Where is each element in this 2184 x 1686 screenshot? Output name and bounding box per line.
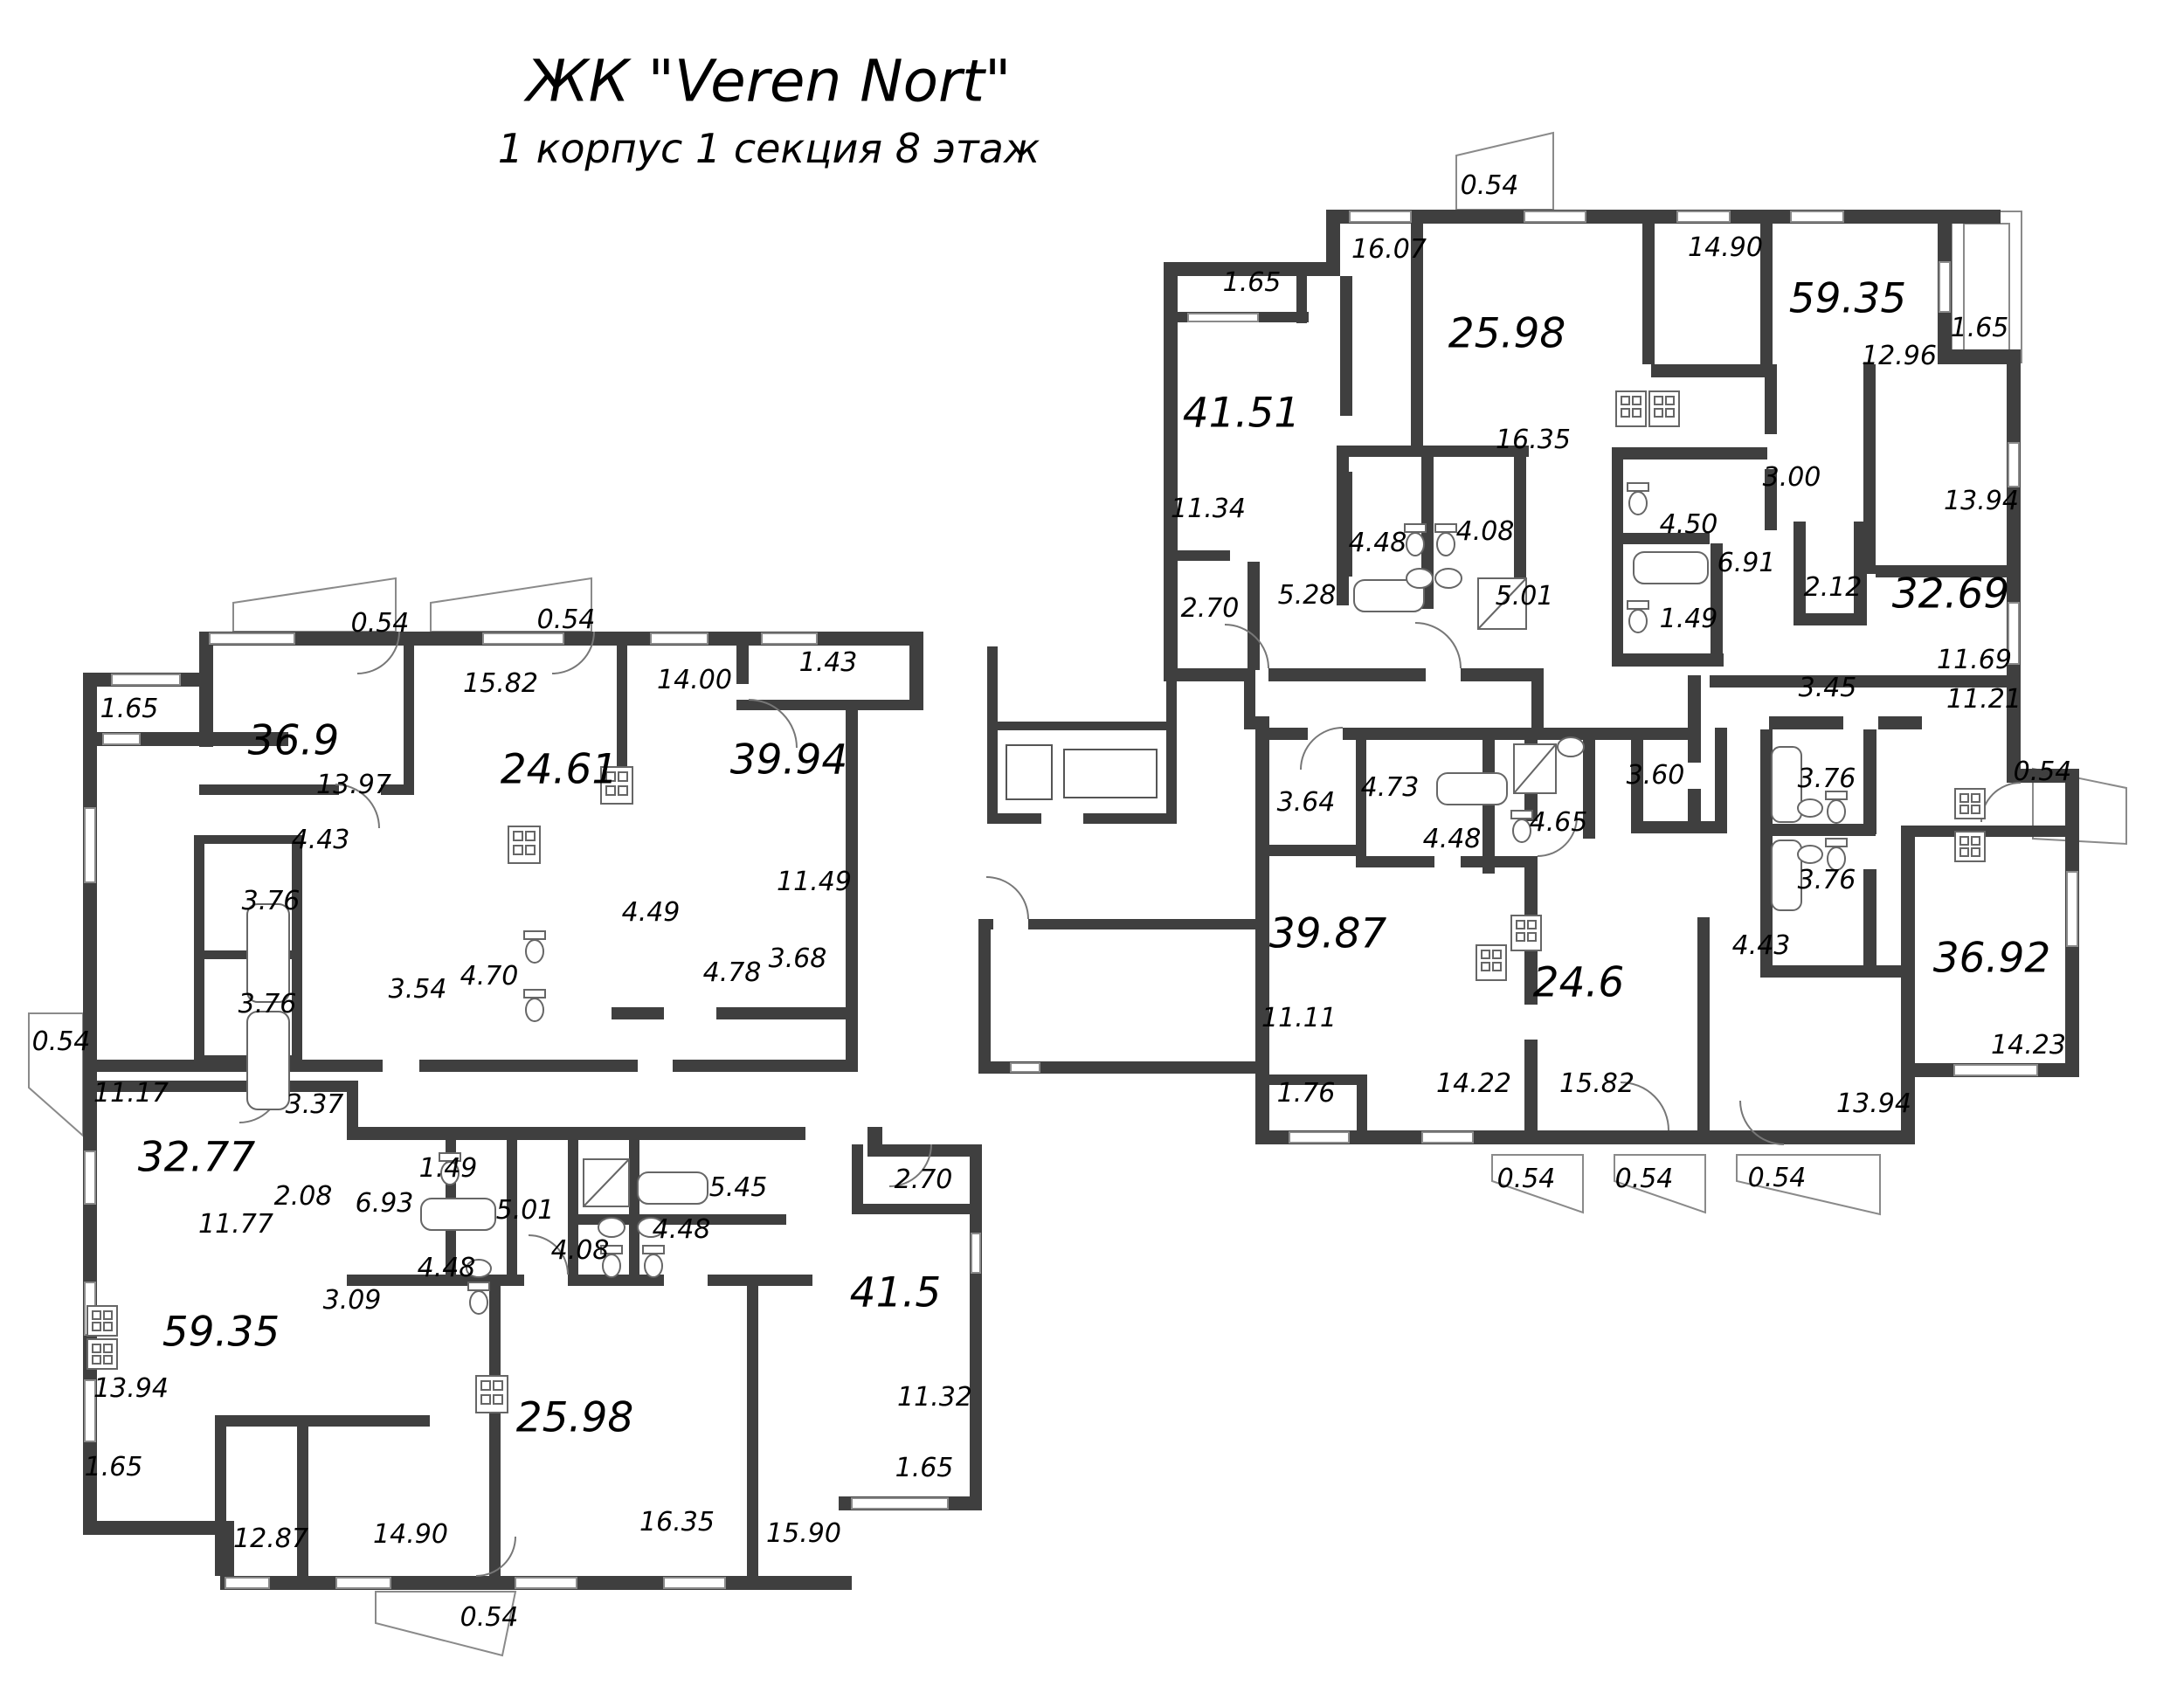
area-label: 11.21 <box>1946 687 2022 713</box>
area-label: 2.70 <box>1181 596 1240 622</box>
fixtures <box>87 391 1985 1413</box>
area-label: 0.54 <box>1748 1165 1807 1192</box>
area-label: 11.32 <box>897 1385 972 1411</box>
toilet-icon <box>1628 601 1648 632</box>
area-label: 4.48 <box>653 1217 711 1243</box>
area-label: 59.35 <box>1789 279 1907 320</box>
window <box>1422 1132 1473 1143</box>
sink-icon <box>1406 569 1433 588</box>
area-label: 1.49 <box>419 1156 478 1182</box>
area-label: 15.82 <box>1559 1071 1635 1097</box>
area-label: 14.22 <box>1436 1071 1511 1097</box>
toilet-icon <box>468 1282 489 1314</box>
stove-icon <box>87 1339 117 1369</box>
area-label: 16.35 <box>639 1510 715 1536</box>
stove-icon <box>1955 832 1985 861</box>
bathtub-icon <box>421 1199 495 1230</box>
area-label: 41.51 <box>1183 393 1301 434</box>
window <box>210 633 294 644</box>
window <box>515 1578 577 1588</box>
area-label: 0.54 <box>32 1029 91 1055</box>
area-label: 3.09 <box>323 1288 382 1314</box>
window <box>664 1578 725 1588</box>
area-label: 4.08 <box>551 1238 610 1264</box>
area-label: 3.45 <box>1799 675 1857 701</box>
stove-icon <box>508 826 540 863</box>
area-label: 11.17 <box>93 1081 169 1107</box>
window <box>971 1233 980 1273</box>
area-label: 3.76 <box>238 992 297 1018</box>
area-label: 4.49 <box>622 900 681 926</box>
window <box>1939 262 1950 312</box>
area-label: 3.54 <box>389 977 447 1003</box>
area-label: 0.54 <box>1461 173 1519 199</box>
area-label: 14.23 <box>1991 1033 2066 1059</box>
sink-icon <box>1558 737 1584 757</box>
area-label: 1.76 <box>1277 1081 1336 1107</box>
door-arc <box>986 877 1028 919</box>
area-label: 4.43 <box>1732 933 1791 959</box>
toilet-icon <box>643 1246 664 1277</box>
bathtub-icon <box>638 1172 708 1204</box>
area-label: 1.65 <box>1951 315 2009 342</box>
window <box>85 1151 95 1204</box>
window <box>1011 1063 1040 1072</box>
area-label: 36.9 <box>248 721 340 762</box>
shower-icon <box>1514 744 1556 793</box>
area-label: 4.78 <box>703 960 762 986</box>
area-label: 5.45 <box>709 1175 768 1201</box>
area-label: 16.35 <box>1496 427 1571 453</box>
window <box>1954 1065 2037 1075</box>
area-label: 2.70 <box>895 1167 953 1193</box>
area-label: 1.65 <box>100 696 159 722</box>
window <box>336 1578 390 1588</box>
sink-icon <box>1798 846 1822 863</box>
area-label: 12.87 <box>233 1526 308 1552</box>
area-label: 4.48 <box>1423 826 1482 853</box>
area-label: 25.98 <box>1448 314 1566 355</box>
area-label: 24.6 <box>1533 963 1625 1004</box>
stove-icon <box>1511 916 1541 950</box>
area-label: 39.87 <box>1269 914 1387 955</box>
area-label: 11.77 <box>198 1212 273 1238</box>
sink-icon <box>1435 569 1462 588</box>
sink-icon <box>598 1218 625 1237</box>
window <box>1289 1132 1349 1143</box>
toilet-icon <box>1435 524 1456 556</box>
area-label: 3.64 <box>1277 790 1336 816</box>
window <box>2008 443 2019 487</box>
area-label: 1.43 <box>799 650 858 676</box>
area-label: 11.69 <box>1937 647 2012 674</box>
stove-icon <box>87 1306 117 1336</box>
toilet-icon <box>524 931 545 963</box>
area-label: 11.34 <box>1171 496 1246 522</box>
stove-icon <box>1616 391 1646 426</box>
area-label: 4.43 <box>292 827 350 853</box>
area-label: 16.07 <box>1351 237 1427 263</box>
area-label: 3.76 <box>1798 867 1856 894</box>
area-label: 4.48 <box>1349 530 1407 556</box>
area-label: 12.96 <box>1862 343 1937 370</box>
area-label: 2.12 <box>1804 575 1863 601</box>
area-label: 3.68 <box>769 946 827 972</box>
toilet-icon <box>1826 791 1847 823</box>
elevator-car <box>1006 745 1052 799</box>
window <box>85 808 95 882</box>
area-label: 3.37 <box>286 1092 344 1118</box>
floor-plan: ЖК "Veren Nort" 1 корпус 1 секция 8 этаж… <box>0 0 2184 1686</box>
door-arc <box>1225 625 1268 668</box>
window <box>651 633 708 644</box>
toilet-icon <box>1405 524 1426 556</box>
area-label: 15.90 <box>766 1521 841 1547</box>
area-label: 2.08 <box>274 1184 333 1210</box>
area-label: 4.73 <box>1361 775 1420 801</box>
area-label: 3.00 <box>1763 465 1821 491</box>
area-label: 39.94 <box>730 740 848 781</box>
stove-icon <box>1649 391 1679 426</box>
plan-subtitle: 1 корпус 1 секция 8 этаж <box>498 125 1040 172</box>
window <box>1677 211 1730 222</box>
area-label: 14.00 <box>657 667 732 694</box>
area-label: 4.65 <box>1530 810 1588 836</box>
plan-title: ЖК "Veren Nort" <box>527 48 1012 115</box>
sink-icon <box>1798 799 1822 817</box>
area-label: 13.94 <box>1836 1091 1911 1117</box>
bathtub-icon <box>247 1012 289 1109</box>
area-label: 0.54 <box>351 611 410 637</box>
area-label: 0.54 <box>2014 759 2072 785</box>
window <box>1350 211 1411 222</box>
area-label: 59.35 <box>162 1312 280 1353</box>
window <box>112 674 180 685</box>
area-label: 41.5 <box>850 1273 942 1314</box>
area-label: 4.08 <box>1456 519 1515 545</box>
bathtub-icon <box>1634 552 1708 584</box>
door-arc <box>1415 623 1461 668</box>
area-label: 1.49 <box>1660 606 1718 632</box>
window <box>1188 314 1258 321</box>
area-label: 15.82 <box>463 671 538 697</box>
area-label: 32.69 <box>1892 574 2010 615</box>
area-label: 13.94 <box>93 1376 169 1402</box>
area-label: 25.98 <box>516 1398 634 1439</box>
area-label: 1.65 <box>1223 270 1282 296</box>
window <box>225 1578 269 1588</box>
bathtub-icon <box>1437 773 1507 805</box>
area-label: 4.50 <box>1660 512 1718 538</box>
area-label: 24.61 <box>501 750 619 791</box>
area-label: 32.77 <box>138 1137 256 1178</box>
area-label: 3.60 <box>1627 763 1685 789</box>
area-label: 13.94 <box>1944 488 2019 515</box>
area-label: 36.92 <box>1933 938 2051 979</box>
door-arc <box>1981 783 2021 822</box>
shower-icon <box>584 1159 629 1206</box>
window <box>2067 872 2077 946</box>
area-label: 0.54 <box>460 1605 519 1631</box>
elevator-shaft <box>1006 745 1157 799</box>
elevator-car <box>1064 750 1157 798</box>
window <box>762 633 817 644</box>
area-label: 0.54 <box>1497 1166 1556 1192</box>
area-label: 11.49 <box>777 869 852 895</box>
window <box>1524 211 1586 222</box>
area-label: 14.90 <box>373 1522 448 1548</box>
area-label: 0.54 <box>1615 1166 1674 1192</box>
area-label: 4.48 <box>418 1255 476 1282</box>
stove-icon <box>476 1376 508 1413</box>
stove-icon <box>1476 945 1506 980</box>
area-label: 14.90 <box>1688 235 1763 261</box>
area-label: 13.97 <box>316 772 391 798</box>
stove-icon <box>1955 789 1985 819</box>
area-label: 4.70 <box>460 964 519 990</box>
window <box>1791 211 1843 222</box>
area-label: 3.76 <box>242 888 301 915</box>
area-label: 0.54 <box>537 607 596 633</box>
area-label: 5.01 <box>1496 584 1554 610</box>
bathtub-icon <box>247 904 289 1002</box>
area-label: 6.91 <box>1717 550 1776 577</box>
area-label: 11.11 <box>1261 1005 1337 1032</box>
window <box>852 1498 948 1509</box>
area-label: 1.65 <box>85 1455 143 1481</box>
toilet-icon <box>1628 483 1648 515</box>
area-label: 6.93 <box>356 1191 414 1217</box>
area-label: 5.28 <box>1278 583 1337 609</box>
area-label: 3.76 <box>1798 766 1856 792</box>
area-label: 1.65 <box>895 1455 954 1482</box>
area-label: 5.01 <box>496 1198 555 1224</box>
toilet-icon <box>524 990 545 1021</box>
window <box>103 734 140 744</box>
